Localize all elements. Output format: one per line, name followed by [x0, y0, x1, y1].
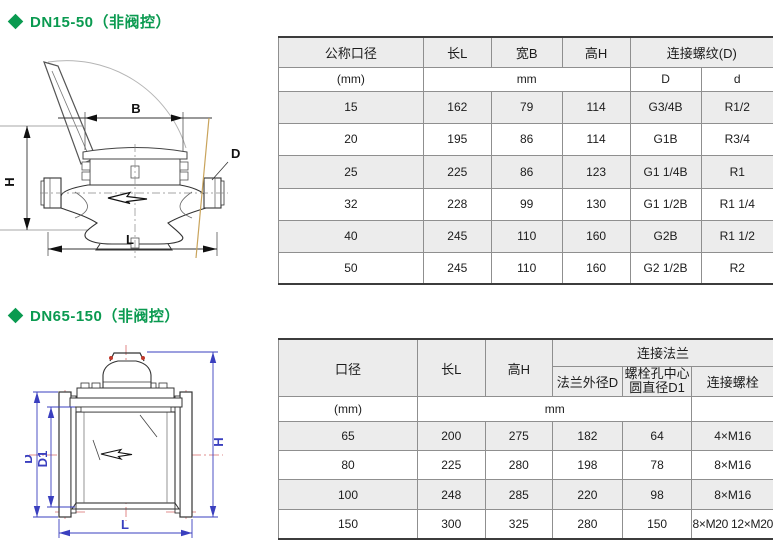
- table-row: 65 200 275 182 64 4×M16: [279, 422, 773, 451]
- col-header-dn: 公称口径: [279, 37, 424, 67]
- register-base: [77, 388, 174, 398]
- table-cell: 245: [423, 252, 491, 284]
- table-cell: G2 1/2B: [630, 252, 701, 284]
- table-row: 100 248 285 220 98 8×M16: [279, 480, 773, 510]
- col-header-length: 长L: [423, 37, 491, 67]
- register-dome: [103, 361, 151, 388]
- bolt-icon: [82, 162, 90, 170]
- table-row: 25 225 86 123 G1 1/4B R1: [279, 155, 773, 188]
- table-cell: 198: [553, 451, 623, 480]
- bolt-icon: [81, 383, 89, 388]
- table-cell: [692, 397, 773, 422]
- table-cell: 64: [622, 422, 692, 451]
- table-cell: 32: [279, 188, 424, 220]
- col-header-height: 高H: [562, 37, 630, 67]
- bail-handle: [110, 353, 144, 361]
- table-row: 40 245 110 160 G2B R1 1/2: [279, 220, 773, 252]
- table-cell: 162: [423, 91, 491, 123]
- table-cell: 40: [279, 220, 424, 252]
- top-plate: [70, 398, 182, 407]
- table-cell: G1 1/2B: [630, 188, 701, 220]
- dim-label-h: H: [211, 437, 226, 446]
- dim-label-h: H: [2, 177, 17, 186]
- dim-label-l: L: [121, 517, 129, 532]
- section2-title: DN65-150（非阀控）: [10, 305, 180, 326]
- table-cell: R1/2: [701, 91, 773, 123]
- col-header-flange: 连接法兰: [553, 339, 773, 366]
- table-cell: 160: [562, 252, 630, 284]
- table-cell: 8×M20 12×M20: [692, 510, 773, 539]
- table-cell: 25: [279, 155, 424, 188]
- dn65-150-drawing: H D D1 L: [25, 335, 250, 547]
- table-cell: G1 1/4B: [630, 155, 701, 188]
- table-cell: G2B: [630, 220, 701, 252]
- meter-body: [76, 412, 175, 503]
- table-header-row: 口径 长L 高H 连接法兰: [279, 339, 773, 366]
- section1-title-text: DN15-50（非阀控）: [30, 11, 171, 32]
- table-header-row: 公称口径 长L 宽B 高H 连接螺纹(D): [279, 37, 773, 67]
- table-cell: 280: [553, 510, 623, 539]
- table-cell: 86: [491, 155, 562, 188]
- table-cell: 79: [491, 91, 562, 123]
- table-cell: 50: [279, 252, 424, 284]
- table-cell: 225: [423, 155, 491, 188]
- table-row: 150 300 325 280 150 8×M20 12×M20: [279, 510, 773, 539]
- table-cell: 228: [423, 188, 491, 220]
- flange-left: [59, 392, 71, 517]
- col-header-length: 长L: [418, 339, 485, 397]
- table-cell: 15: [279, 91, 424, 123]
- bolt-icon: [180, 162, 188, 170]
- table-cell: 110: [491, 252, 562, 284]
- dn65-150-table: 口径 长L 高H 连接法兰 法兰外径D 螺栓孔中心 圆直径D1 连接螺栓 (mm…: [278, 338, 773, 540]
- table-cell: 150: [622, 510, 692, 539]
- table-cell: 86: [491, 123, 562, 155]
- section2-title-text: DN65-150（非阀控）: [30, 305, 180, 326]
- page: DN15-50（非阀控）: [0, 0, 773, 547]
- table-cell: d: [701, 67, 773, 91]
- unit-row: (mm) mm D d: [279, 67, 773, 91]
- bolt-icon: [180, 172, 188, 180]
- table-cell: 300: [418, 510, 485, 539]
- table-cell: 130: [562, 188, 630, 220]
- table-cell: 110: [491, 220, 562, 252]
- table-row: 80 225 280 198 78 8×M16: [279, 451, 773, 480]
- table-row: 15 162 79 114 G3/4B R1/2: [279, 91, 773, 123]
- table-cell: 65: [279, 422, 418, 451]
- table-cell: 4×M16: [692, 422, 773, 451]
- col-header-flange-od: 法兰外径D: [553, 366, 623, 397]
- table-cell: R2: [701, 252, 773, 284]
- table-cell: 8×M16: [692, 451, 773, 480]
- table-cell: mm: [423, 67, 630, 91]
- col-header-height: 高H: [485, 339, 553, 397]
- table-cell: (mm): [279, 397, 418, 422]
- table-cell: 245: [423, 220, 491, 252]
- table-cell: 98: [622, 480, 692, 510]
- dn15-50-drawing: B H L D: [0, 40, 265, 290]
- bolt-icon: [159, 383, 167, 388]
- table-cell: 182: [553, 422, 623, 451]
- table-cell: G1B: [630, 123, 701, 155]
- table-cell: 325: [485, 510, 553, 539]
- table-cell: G3/4B: [630, 91, 701, 123]
- dim-label-d: D: [25, 454, 35, 463]
- table-cell: 80: [279, 451, 418, 480]
- dim-label-d1: D1: [35, 451, 50, 468]
- table-cell: 150: [279, 510, 418, 539]
- col-header-thread: 连接螺纹(D): [630, 37, 773, 67]
- table-cell: 225: [418, 451, 485, 480]
- table-cell: 114: [562, 123, 630, 155]
- table-cell: R1 1/4: [701, 188, 773, 220]
- table-cell: 114: [562, 91, 630, 123]
- table-cell: 160: [562, 220, 630, 252]
- table-cell: 8×M16: [692, 480, 773, 510]
- dim-label-b: B: [131, 101, 140, 116]
- col-header-bolt-circle: 螺栓孔中心 圆直径D1: [622, 366, 692, 397]
- dim-label-l: L: [126, 232, 134, 247]
- table-cell: 78: [622, 451, 692, 480]
- table-cell: 200: [418, 422, 485, 451]
- table-cell: R3/4: [701, 123, 773, 155]
- col-header-width: 宽B: [491, 37, 562, 67]
- section1-title: DN15-50（非阀控）: [10, 11, 171, 32]
- diamond-bullet-icon: [8, 308, 24, 324]
- table-cell: R1: [701, 155, 773, 188]
- table-cell: 123: [562, 155, 630, 188]
- bolt-icon: [82, 172, 90, 180]
- table-row: 32 228 99 130 G1 1/2B R1 1/4: [279, 188, 773, 220]
- table-cell: 20: [279, 123, 424, 155]
- table-cell: R1 1/2: [701, 220, 773, 252]
- table-cell: (mm): [279, 67, 424, 91]
- bolt-icon: [92, 383, 100, 388]
- table-cell: 220: [553, 480, 623, 510]
- table-cell: D: [630, 67, 701, 91]
- table-cell: 100: [279, 480, 418, 510]
- table-cell: 99: [491, 188, 562, 220]
- table-cell: 195: [423, 123, 491, 155]
- flange-right: [180, 392, 192, 517]
- diamond-bullet-icon: [8, 14, 24, 30]
- dim-label-d: D: [231, 146, 240, 161]
- col-header-dn: 口径: [279, 339, 418, 397]
- dn15-50-table: 公称口径 长L 宽B 高H 连接螺纹(D) (mm) mm D d 15 162…: [278, 36, 773, 285]
- table-cell: 275: [485, 422, 553, 451]
- table-row: 20 195 86 114 G1B R3/4: [279, 123, 773, 155]
- table-cell: 280: [485, 451, 553, 480]
- col-header-bolts: 连接螺栓: [692, 366, 773, 397]
- table-cell: 248: [418, 480, 485, 510]
- table-cell: mm: [418, 397, 692, 422]
- table-row: 50 245 110 160 G2 1/2B R2: [279, 252, 773, 284]
- table-cell: 285: [485, 480, 553, 510]
- unit-row: (mm) mm: [279, 397, 773, 422]
